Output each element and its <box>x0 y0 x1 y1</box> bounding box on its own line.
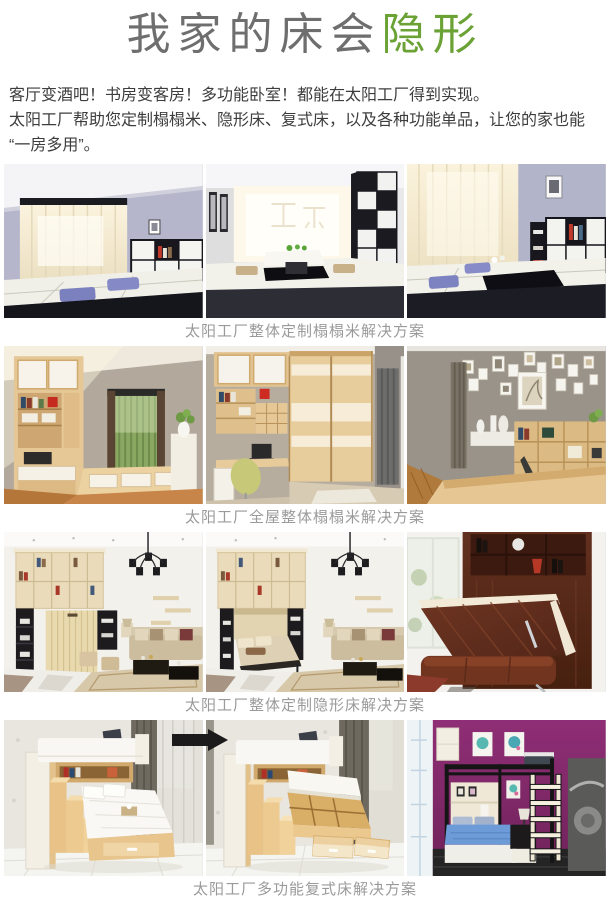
photo-wall-shelving-room <box>407 346 606 504</box>
intro-line-2: 太阳工厂帮助您定制榻榻米、隐形床、复式床，以及各种功能单品，让您的家也能 <box>9 108 598 133</box>
storage-stair-bed-open <box>206 720 405 876</box>
photo-row-tatami-wholehouse <box>0 346 610 504</box>
black-white-tatami-corner-room <box>407 164 606 318</box>
black-white-tatami-tea-table-room-illustration <box>206 164 405 318</box>
page-title-highlight: 隐形 <box>382 10 484 59</box>
photo-row-duplex-bed <box>0 720 610 876</box>
black-white-tatami-corner-room-illustration <box>407 164 606 318</box>
intro-text: 客厅变酒吧！书房变客房！多功能卧室！都能在太阳工厂得到实现。 太阳工厂帮助您定制… <box>9 83 598 158</box>
wood-study-bay-window-room-illustration <box>4 346 203 504</box>
caption-tatami-wholehouse: 太阳工厂全屋整体榻榻米解决方案 <box>0 510 610 526</box>
wood-study-bay-window-room <box>4 346 203 504</box>
storage-stair-bed-open-illustration <box>206 720 405 876</box>
murphy-bed-open-living-room-illustration <box>206 532 405 692</box>
caption-murphy-bed: 太阳工厂整体定制隐形床解决方案 <box>0 698 610 714</box>
caption-tatami-custom: 太阳工厂整体定制榻榻米解决方案 <box>0 324 610 340</box>
transform-arrow-icon <box>172 729 228 751</box>
mahogany-folding-wall-bed <box>407 532 606 692</box>
intro-line-3: “一房多用”。 <box>9 133 598 158</box>
caption-duplex-bed: 太阳工厂多功能复式床解决方案 <box>0 882 610 898</box>
murphy-bed-closed-living-room-illustration <box>4 532 203 692</box>
black-white-tatami-window-room-illustration <box>4 164 203 318</box>
black-white-tatami-tea-table-room <box>206 164 405 318</box>
page-title-normal: 我家的床会 <box>127 10 382 59</box>
photo-wall-shelving-room-illustration <box>407 346 606 504</box>
black-white-tatami-window-room <box>4 164 203 318</box>
mahogany-folding-wall-bed-illustration <box>407 532 606 692</box>
product-promo-page: 我家的床会隐形 客厅变酒吧！书房变客房！多功能卧室！都能在太阳工厂得到实现。 太… <box>0 0 610 914</box>
murphy-bed-open-living-room <box>206 532 405 692</box>
wood-desk-sliding-wardrobe-room <box>206 346 405 504</box>
wood-desk-sliding-wardrobe-room-illustration <box>206 346 405 504</box>
page-title: 我家的床会隐形 <box>0 8 610 61</box>
intro-line-1: 客厅变酒吧！书房变客房！多功能卧室！都能在太阳工厂得到实现。 <box>9 83 598 108</box>
loft-bed-purple-room <box>407 720 606 876</box>
murphy-bed-closed-living-room <box>4 532 203 692</box>
loft-bed-purple-room-illustration <box>407 720 606 876</box>
photo-row-tatami-custom <box>0 164 610 318</box>
photo-row-murphy-bed <box>0 532 610 692</box>
